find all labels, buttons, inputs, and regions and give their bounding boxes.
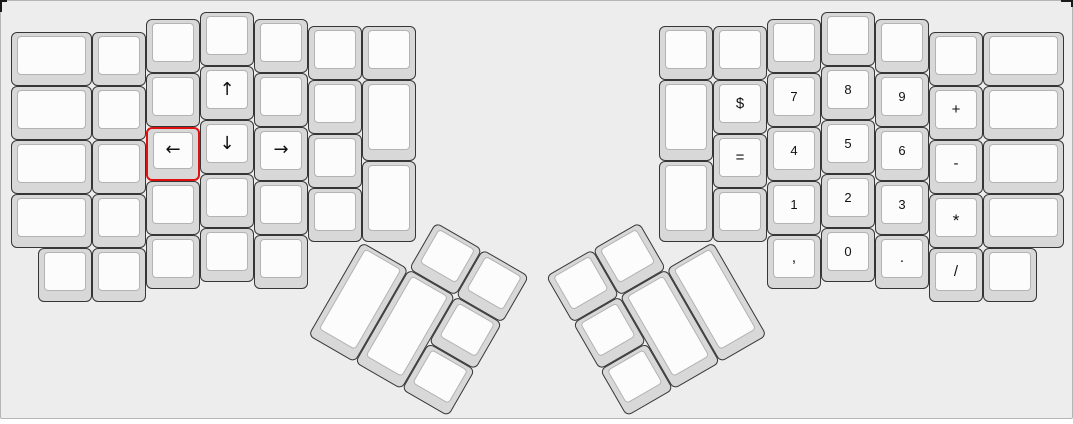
key-blank[interactable] xyxy=(983,32,1064,86)
keyboard-canvas[interactable]: ←↑↓→$=741,8520963.+-*/ xyxy=(0,0,1073,419)
keycap-top-surface xyxy=(206,16,248,55)
key-blank[interactable] xyxy=(821,12,875,66)
keycap-top-surface xyxy=(98,144,140,183)
key-label: 8 xyxy=(844,83,851,96)
keycap-top-surface: 0 xyxy=(827,232,869,271)
keycap-top-surface: 6 xyxy=(881,131,923,170)
keycap-top-surface xyxy=(260,77,302,116)
keycap-top-surface xyxy=(368,84,410,150)
keycap-top-surface xyxy=(773,23,815,62)
keycap-top-surface xyxy=(152,239,194,278)
key-blank[interactable] xyxy=(362,26,416,80)
keycap-top-surface: ← xyxy=(153,132,193,169)
crop-mark-top-left-horizontal xyxy=(0,0,7,2)
key-label: 5 xyxy=(844,137,851,150)
key-plus[interactable]: + xyxy=(929,86,983,140)
keycap-top-surface xyxy=(260,185,302,224)
key-arrow-left[interactable]: ← xyxy=(146,127,200,181)
keycap-top-surface: , xyxy=(773,239,815,278)
key-label: $ xyxy=(736,96,744,111)
key-arrow-up[interactable]: ↑ xyxy=(200,66,254,120)
keycap-top-surface xyxy=(719,30,761,69)
key-blank[interactable] xyxy=(875,19,929,73)
keycap-top-surface: * xyxy=(935,198,977,237)
keycap-top-surface xyxy=(989,144,1058,183)
keycap-top-surface xyxy=(368,30,410,69)
key-equals[interactable]: = xyxy=(713,134,767,188)
key-label: ↓ xyxy=(219,135,234,153)
key-blank[interactable] xyxy=(254,73,308,127)
keycap-top-surface xyxy=(44,252,86,291)
key-blank[interactable] xyxy=(983,140,1064,194)
key-label: 1 xyxy=(790,198,797,211)
key-blank[interactable] xyxy=(11,194,92,248)
key-blank[interactable] xyxy=(146,73,200,127)
key-label: * xyxy=(953,212,960,229)
key-asterisk[interactable]: * xyxy=(929,194,983,248)
keycap-top-surface xyxy=(314,138,356,177)
keycap-top-surface: ↓ xyxy=(206,124,248,163)
keycap-top-surface: ↑ xyxy=(206,70,248,109)
key-blank[interactable] xyxy=(659,26,713,80)
keycap-top-surface xyxy=(314,30,356,69)
keycap-top-surface xyxy=(152,23,194,62)
keycap-top-surface xyxy=(665,165,707,231)
key-period[interactable]: . xyxy=(875,235,929,289)
key-slash[interactable]: / xyxy=(929,248,983,302)
keycap-top-surface: 2 xyxy=(827,178,869,217)
keycap-top-surface xyxy=(98,36,140,75)
key-blank[interactable] xyxy=(983,194,1064,248)
key-comma[interactable]: , xyxy=(767,235,821,289)
key-label: = xyxy=(736,150,745,165)
keycap-top-surface: → xyxy=(260,131,302,170)
key-blank[interactable] xyxy=(983,248,1037,302)
key-blank[interactable] xyxy=(254,181,308,235)
key-label: 6 xyxy=(898,144,905,157)
key-label: 2 xyxy=(844,191,851,204)
key-minus[interactable]: - xyxy=(929,140,983,194)
keycap-top-surface xyxy=(600,228,656,283)
keycap-top-surface xyxy=(719,192,761,231)
key-blank[interactable] xyxy=(929,32,983,86)
key-blank[interactable] xyxy=(92,32,146,86)
key-blank[interactable] xyxy=(92,140,146,194)
key-num-2[interactable]: 2 xyxy=(821,174,875,228)
key-label: 9 xyxy=(898,90,905,103)
key-blank[interactable] xyxy=(659,80,713,161)
keycap-top-surface xyxy=(98,252,140,291)
keycap-top-surface: + xyxy=(935,90,977,129)
keycap-top-surface: / xyxy=(935,252,977,291)
keycap-top-surface xyxy=(98,90,140,129)
keycap-top-surface xyxy=(368,165,410,231)
key-blank[interactable] xyxy=(983,86,1064,140)
keycap-top-surface xyxy=(989,198,1058,237)
keycap-top-surface: 3 xyxy=(881,185,923,224)
key-blank[interactable] xyxy=(254,235,308,289)
keycap-top-surface xyxy=(152,185,194,224)
key-blank[interactable] xyxy=(713,26,767,80)
keycap-top-surface: 9 xyxy=(881,77,923,116)
keycap-top-surface xyxy=(935,36,977,75)
keycap-top-surface xyxy=(989,252,1031,291)
key-blank[interactable] xyxy=(92,86,146,140)
key-num-4[interactable]: 4 xyxy=(767,127,821,181)
key-blank[interactable] xyxy=(659,161,713,242)
key-blank[interactable] xyxy=(308,134,362,188)
key-label: . xyxy=(900,250,904,265)
keycap-top-surface: . xyxy=(881,239,923,278)
key-blank[interactable] xyxy=(11,140,92,194)
keycap-top-surface: = xyxy=(719,138,761,177)
keycap-top-surface xyxy=(827,16,869,55)
key-label: 7 xyxy=(790,90,797,103)
keycap-top-surface: 1 xyxy=(773,185,815,224)
key-dollar[interactable]: $ xyxy=(713,80,767,134)
key-label: / xyxy=(954,264,958,279)
key-label: ← xyxy=(165,141,180,159)
keycap-top-surface: $ xyxy=(719,84,761,123)
keycap-top-surface xyxy=(260,23,302,62)
key-num-6[interactable]: 6 xyxy=(875,127,929,181)
keycap-top-surface: - xyxy=(935,144,977,183)
keycap-top-surface xyxy=(989,36,1058,75)
keycap-top-surface xyxy=(314,84,356,123)
keycap-top-surface xyxy=(17,198,86,237)
keycap-top-surface: 7 xyxy=(773,77,815,116)
key-num-5[interactable]: 5 xyxy=(821,120,875,174)
key-blank[interactable] xyxy=(713,188,767,242)
key-num-9[interactable]: 9 xyxy=(875,73,929,127)
key-blank[interactable] xyxy=(308,80,362,134)
keycap-top-surface xyxy=(466,255,522,310)
key-blank[interactable] xyxy=(200,174,254,228)
keycap-top-surface xyxy=(206,232,248,271)
key-blank[interactable] xyxy=(200,12,254,66)
keycap-top-surface xyxy=(152,77,194,116)
keycap-top-surface xyxy=(260,239,302,278)
key-arrow-right[interactable]: → xyxy=(254,127,308,181)
keycap-top-surface xyxy=(665,30,707,69)
key-label: 3 xyxy=(898,198,905,211)
key-num-0[interactable]: 0 xyxy=(821,228,875,282)
keycap-top-surface xyxy=(553,255,609,310)
key-arrow-down[interactable]: ↓ xyxy=(200,120,254,174)
key-blank[interactable] xyxy=(308,26,362,80)
key-label: + xyxy=(952,102,961,117)
keycap-top-surface xyxy=(17,144,86,183)
key-blank[interactable] xyxy=(92,194,146,248)
key-blank[interactable] xyxy=(11,32,92,86)
keycap-top-surface xyxy=(206,178,248,217)
keycap-top-surface: 8 xyxy=(827,70,869,109)
key-blank[interactable] xyxy=(254,19,308,73)
key-blank[interactable] xyxy=(767,19,821,73)
key-blank[interactable] xyxy=(362,161,416,242)
keycap-top-surface xyxy=(314,192,356,231)
key-label: 0 xyxy=(844,245,851,258)
key-blank[interactable] xyxy=(308,188,362,242)
key-label: ↑ xyxy=(219,81,234,99)
key-blank[interactable] xyxy=(146,19,200,73)
keycap-top-surface: 5 xyxy=(827,124,869,163)
key-blank[interactable] xyxy=(362,80,416,161)
key-label: - xyxy=(954,156,959,171)
keycap-top-surface xyxy=(881,23,923,62)
key-blank[interactable] xyxy=(92,248,146,302)
key-blank[interactable] xyxy=(146,235,200,289)
key-blank[interactable] xyxy=(146,181,200,235)
keycap-top-surface xyxy=(17,36,86,75)
keycap-top-surface xyxy=(98,198,140,237)
keycap-top-surface xyxy=(989,90,1058,129)
keyboard-layout-editor-stage: ←↑↓→$=741,8520963.+-*/ xyxy=(0,0,1073,424)
keycap-top-surface xyxy=(17,90,86,129)
key-label: 4 xyxy=(790,144,797,157)
key-blank[interactable] xyxy=(200,228,254,282)
key-num-8[interactable]: 8 xyxy=(821,66,875,120)
key-num-7[interactable]: 7 xyxy=(767,73,821,127)
key-label: → xyxy=(273,141,288,159)
key-label: , xyxy=(792,250,796,265)
keycap-top-surface xyxy=(665,84,707,150)
key-num-3[interactable]: 3 xyxy=(875,181,929,235)
key-num-1[interactable]: 1 xyxy=(767,181,821,235)
keycap-top-surface: 4 xyxy=(773,131,815,170)
key-blank[interactable] xyxy=(11,86,92,140)
key-blank[interactable] xyxy=(38,248,92,302)
